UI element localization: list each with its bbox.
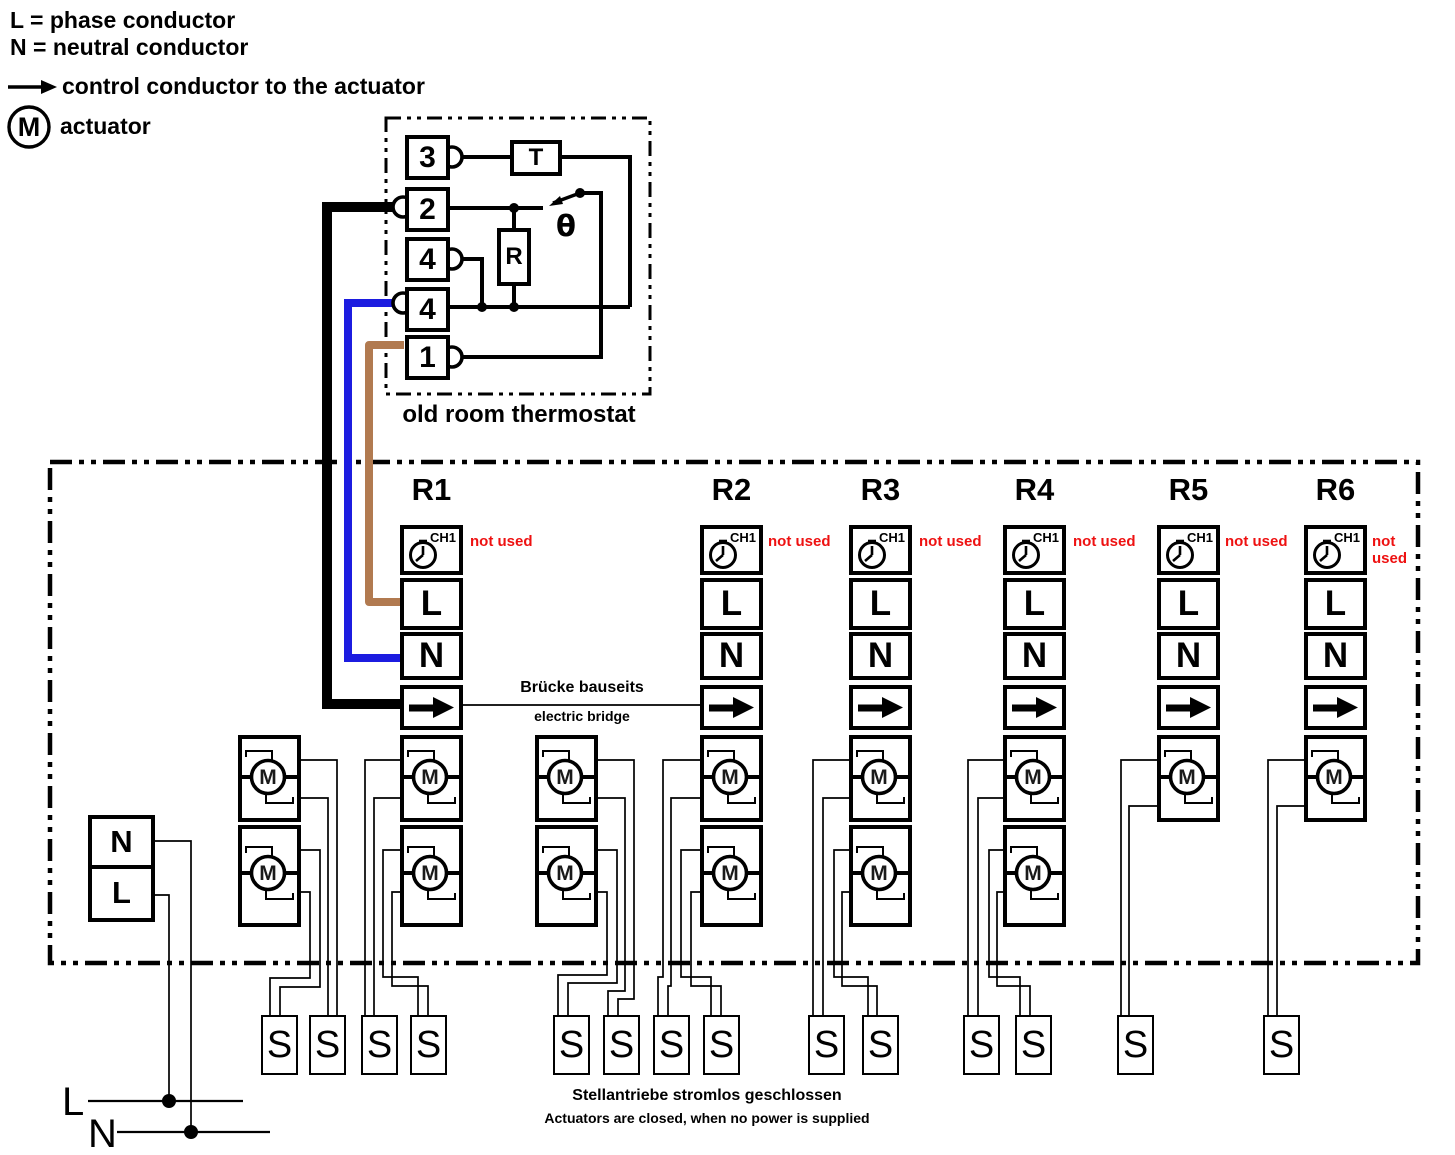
thermostat-t-box: T xyxy=(510,140,562,176)
m-letter: M xyxy=(721,766,739,789)
actuator-cell: M xyxy=(400,825,463,927)
terminal-n: N xyxy=(1003,632,1066,680)
m-letter: M xyxy=(421,766,439,789)
actuator-cell: M xyxy=(1003,735,1066,822)
terminal-l: L xyxy=(1304,578,1367,630)
plug-label: S xyxy=(969,1024,994,1067)
terminal-n: N xyxy=(1157,632,1220,680)
terminal-l: L xyxy=(700,578,763,630)
thermostat-terminal-4b: 4 xyxy=(405,287,450,332)
actuator-plug-s: S xyxy=(808,1015,845,1075)
not-used-label: not used xyxy=(768,533,840,550)
channel-label: R3 xyxy=(839,472,922,508)
actuator-cell: M xyxy=(1157,735,1220,822)
control-arrow-cell xyxy=(1157,685,1220,730)
timer-cell: CH1 xyxy=(400,525,463,575)
control-arrow-icon xyxy=(404,689,459,726)
channel-label: R2 xyxy=(690,472,773,508)
thermostat-terminal-3: 3 xyxy=(405,135,450,180)
control-arrow-icon xyxy=(704,689,759,726)
actuator-plug-s: S xyxy=(862,1015,899,1075)
actuator-box-1: M M xyxy=(238,735,301,927)
m-letter: M xyxy=(870,862,888,885)
plug-label: S xyxy=(559,1024,584,1067)
actuator-m-symbol: M xyxy=(404,739,459,818)
m-letter: M xyxy=(259,862,277,885)
actuator-cell: M xyxy=(849,735,912,822)
actuator-cell: M xyxy=(535,735,598,822)
control-arrow-cell xyxy=(1003,685,1066,730)
legend-arrow-icon xyxy=(8,80,57,94)
thermostat-r-box: R xyxy=(497,228,531,286)
note-de: Stellantriebe stromlos geschlossen xyxy=(447,1087,967,1105)
actuator-plug-s: S xyxy=(553,1015,590,1075)
timer-cell: CH1 xyxy=(1304,525,1367,575)
m-letter: M xyxy=(870,766,888,789)
control-arrow-cell xyxy=(400,685,463,730)
legend-m-letter: M xyxy=(18,112,41,142)
phase-wire-black xyxy=(327,207,400,704)
terminal-n: N xyxy=(700,632,763,680)
channel-label: R6 xyxy=(1294,472,1377,508)
plug-label: S xyxy=(709,1024,734,1067)
actuator-m-symbol: M xyxy=(853,739,908,818)
control-arrow-cell xyxy=(700,685,763,730)
control-arrow-cell xyxy=(1304,685,1367,730)
plug-label: S xyxy=(1269,1024,1294,1067)
control-arrow-icon xyxy=(1308,689,1363,726)
channel-strip-r4: R4 CH1 L N M M not used xyxy=(1003,525,1066,927)
actuator-plug-s: S xyxy=(703,1015,740,1075)
plug-label: S xyxy=(1123,1024,1148,1067)
channel-label: R1 xyxy=(390,472,473,508)
m-letter: M xyxy=(556,862,574,885)
actuator-m-symbol: M xyxy=(704,829,759,923)
terminal-l: L xyxy=(400,578,463,630)
control-arrow-icon xyxy=(853,689,908,726)
thermostat-terminal-2: 2 xyxy=(405,187,450,232)
bridge-label-de: Brücke bauseits xyxy=(462,679,702,697)
note-en: Actuators are closed, when no power is s… xyxy=(447,1110,967,1126)
bridge-label-en: electric bridge xyxy=(462,708,702,724)
clock-icon xyxy=(1163,535,1199,571)
actuator-plug-s: S xyxy=(410,1015,447,1075)
actuator-plug-s: S xyxy=(1117,1015,1154,1075)
timer-cell: CH1 xyxy=(1157,525,1220,575)
plug-label: S xyxy=(659,1024,684,1067)
channel-strip-r2: R2 CH1 L N M M not used xyxy=(700,525,763,927)
channel-strip-r3: R3 CH1 L N M M not used xyxy=(849,525,912,927)
m-letter: M xyxy=(1325,766,1343,789)
actuator-m-symbol: M xyxy=(1007,739,1062,818)
actuator-plug-s: S xyxy=(963,1015,1000,1075)
actuator-plug-s: S xyxy=(1015,1015,1052,1075)
plug-label: S xyxy=(1021,1024,1046,1067)
not-used-label: not used xyxy=(1073,533,1145,550)
legend-neutral: N = neutral conductor xyxy=(10,34,248,61)
actuator-m-symbol: M xyxy=(404,829,459,923)
actuator-m-symbol: M xyxy=(1161,739,1216,818)
plug-label: S xyxy=(267,1024,292,1067)
legend-actuator: actuator xyxy=(60,113,151,140)
plug-label: S xyxy=(367,1024,392,1067)
terminal-l: L xyxy=(1003,578,1066,630)
terminal-l: L xyxy=(849,578,912,630)
clock-icon xyxy=(406,535,442,571)
actuator-cell: M xyxy=(535,825,598,927)
not-used-label: not used xyxy=(919,533,991,550)
actuator-cell: M xyxy=(700,735,763,822)
channel-label: R5 xyxy=(1147,472,1230,508)
terminal-n: N xyxy=(400,632,463,680)
thermostat-theta-label: θ xyxy=(556,209,576,243)
plug-label: S xyxy=(814,1024,839,1067)
legend-phase: L = phase conductor xyxy=(10,7,235,34)
plug-label: S xyxy=(315,1024,340,1067)
actuator-m-symbol: M xyxy=(1308,739,1363,818)
actuator-cell: M xyxy=(1304,735,1367,822)
actuator-plug-s: S xyxy=(309,1015,346,1075)
clock-icon xyxy=(855,535,891,571)
m-letter: M xyxy=(1024,862,1042,885)
not-used-label: not used xyxy=(1372,533,1410,567)
supply-l-label: L xyxy=(62,1080,84,1125)
clock-icon xyxy=(1310,535,1346,571)
actuator-m-symbol: M xyxy=(539,829,594,923)
timer-cell: CH1 xyxy=(849,525,912,575)
timer-cell: CH1 xyxy=(1003,525,1066,575)
wiring-diagram: M L = phase conductor N = neutral conduc… xyxy=(0,0,1455,1155)
plug-label: S xyxy=(609,1024,634,1067)
control-arrow-icon xyxy=(1007,689,1062,726)
actuator-plug-s: S xyxy=(361,1015,398,1075)
legend-control: control conductor to the actuator xyxy=(62,73,425,100)
timer-cell: CH1 xyxy=(700,525,763,575)
not-used-label: not used xyxy=(1225,533,1297,550)
actuator-m-symbol: M xyxy=(242,829,297,923)
actuator-box-2: M M xyxy=(535,735,598,927)
actuator-m-symbol: M xyxy=(539,739,594,818)
thermostat-terminal-1: 1 xyxy=(405,335,450,380)
channel-strip-r1: R1 CH1 L N M M not used xyxy=(400,525,463,927)
terminal-n: N xyxy=(849,632,912,680)
legend-actuator-icon: M xyxy=(9,107,49,147)
m-letter: M xyxy=(721,862,739,885)
m-letter: M xyxy=(421,862,439,885)
actuator-m-symbol: M xyxy=(242,739,297,818)
m-letter: M xyxy=(556,766,574,789)
mains-terminal-l: L xyxy=(92,869,151,919)
actuator-m-symbol: M xyxy=(704,739,759,818)
actuator-plug-s: S xyxy=(603,1015,640,1075)
channel-strip-r5: R5 CH1 L N M not used xyxy=(1157,525,1220,927)
actuator-cell: M xyxy=(400,735,463,822)
channel-strip-r6: R6 CH1 L N M not used xyxy=(1304,525,1367,927)
control-arrow-cell xyxy=(849,685,912,730)
thermostat-wiring xyxy=(450,157,630,357)
actuator-plug-s: S xyxy=(1263,1015,1300,1075)
thermostat-caption: old room thermostat xyxy=(388,401,650,429)
actuator-cell: M xyxy=(849,825,912,927)
thermostat-terminal-4a: 4 xyxy=(405,237,450,282)
mains-terminal-n: N xyxy=(92,819,151,869)
supply-n-label: N xyxy=(88,1112,117,1155)
control-arrow-icon xyxy=(1161,689,1216,726)
actuator-cell: M xyxy=(700,825,763,927)
clock-icon xyxy=(706,535,742,571)
actuator-cell: M xyxy=(238,735,301,822)
plug-label: S xyxy=(868,1024,893,1067)
terminal-l: L xyxy=(1157,578,1220,630)
actuator-m-symbol: M xyxy=(853,829,908,923)
m-letter: M xyxy=(259,766,277,789)
actuator-cell: M xyxy=(1003,825,1066,927)
actuator-m-symbol: M xyxy=(1007,829,1062,923)
not-used-label: not used xyxy=(470,533,542,550)
m-letter: M xyxy=(1024,766,1042,789)
actuator-cell: M xyxy=(238,825,301,927)
m-letter: M xyxy=(1178,766,1196,789)
actuator-plug-s: S xyxy=(261,1015,298,1075)
mains-terminal-box: N L xyxy=(88,815,155,922)
clock-icon xyxy=(1009,535,1045,571)
plug-label: S xyxy=(416,1024,441,1067)
actuator-plug-s: S xyxy=(653,1015,690,1075)
channel-label: R4 xyxy=(993,472,1076,508)
terminal-n: N xyxy=(1304,632,1367,680)
